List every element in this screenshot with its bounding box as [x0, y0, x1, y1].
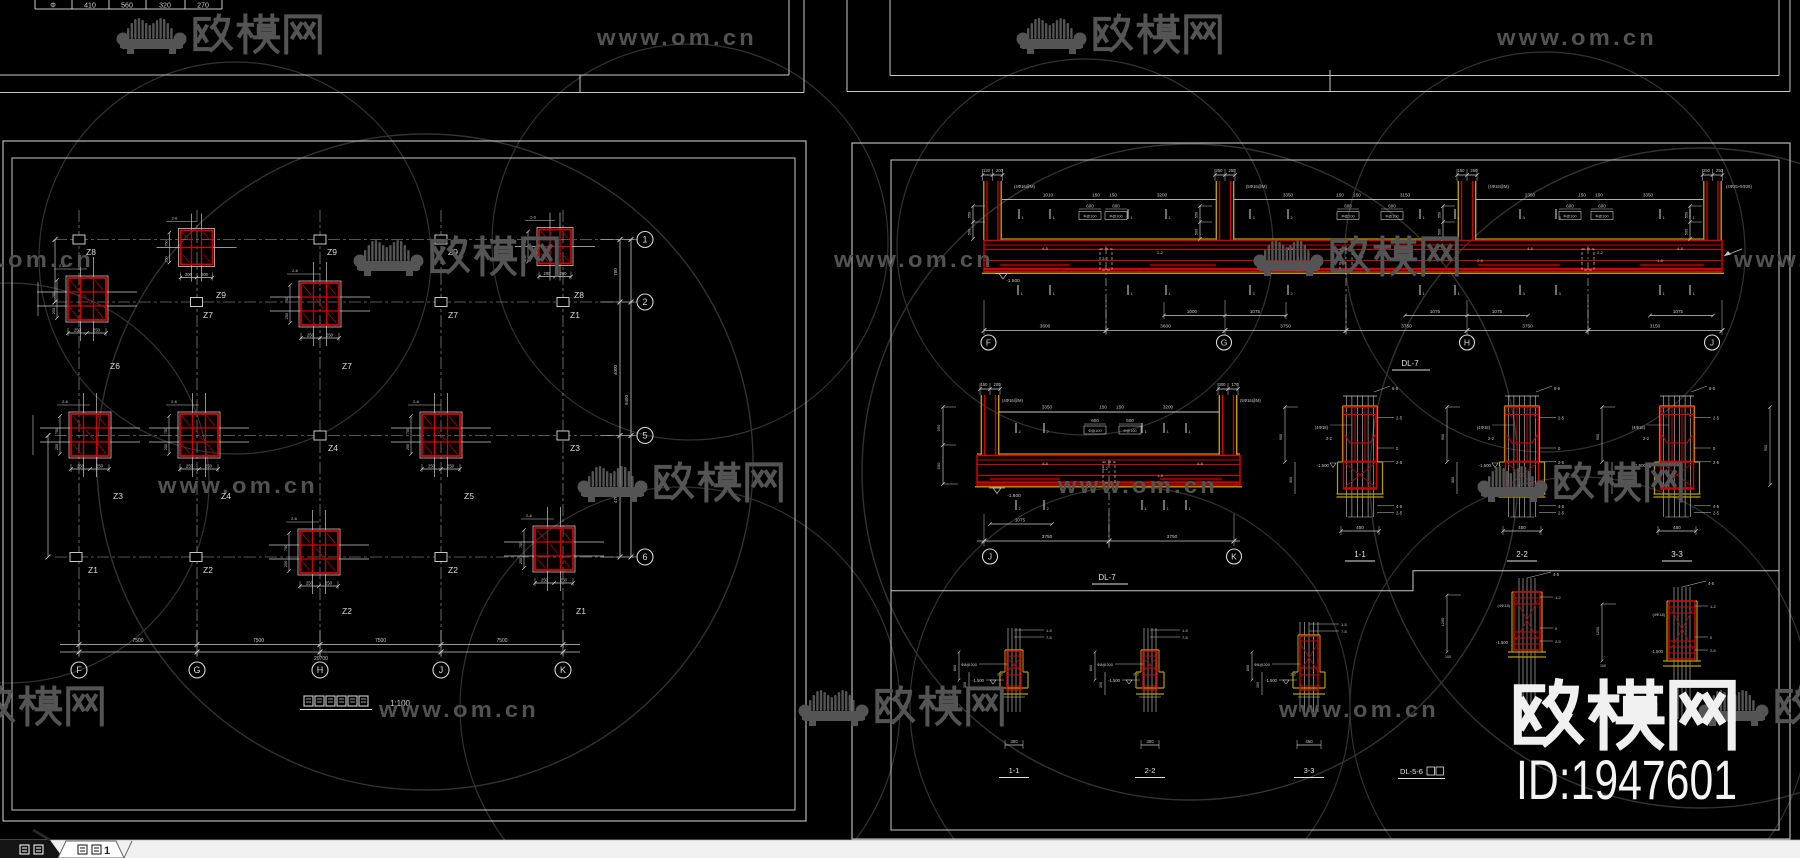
svg-text:www.om.cn: www.om.cn: [833, 247, 994, 272]
svg-text:DL-7: DL-7: [1401, 359, 1419, 368]
svg-text:Z2: Z2: [448, 565, 458, 575]
svg-text:1200: 1200: [1596, 627, 1600, 635]
svg-text:560: 560: [121, 3, 133, 10]
svg-text:6-5: 6-5: [1709, 386, 1716, 391]
svg-text:J: J: [439, 665, 444, 675]
svg-text:H: H: [1464, 338, 1470, 348]
svg-text:Φ@100: Φ@100: [1083, 215, 1096, 219]
svg-text:500: 500: [968, 229, 972, 235]
svg-text:1-5: 1-5: [1341, 622, 1348, 627]
svg-text:(4Φ18): (4Φ18): [1497, 603, 1510, 608]
svg-text:3350: 3350: [1042, 405, 1053, 410]
svg-text:7-5: 7-5: [1341, 629, 1348, 634]
svg-text:550: 550: [936, 424, 941, 431]
svg-text:Φ@100: Φ@100: [1109, 215, 1122, 219]
svg-text:300: 300: [1219, 382, 1227, 387]
svg-text:600: 600: [1598, 204, 1606, 209]
svg-text:2-5: 2-5: [1558, 511, 1565, 516]
svg-text:G: G: [193, 665, 200, 675]
svg-text:3200: 3200: [1163, 405, 1174, 410]
svg-text:H: H: [317, 665, 324, 675]
svg-text:www.om.cn: www.om.cn: [596, 25, 757, 50]
svg-text:800: 800: [1246, 665, 1250, 671]
svg-text:3350: 3350: [1283, 193, 1294, 198]
svg-text:Z2: Z2: [203, 565, 213, 575]
svg-text:2-2: 2-2: [1516, 550, 1528, 559]
svg-text:150: 150: [1092, 193, 1100, 198]
svg-text:Φ@100: Φ@100: [1595, 215, 1608, 219]
svg-text:3600: 3600: [1040, 324, 1051, 330]
svg-text:(4Φ18): (4Φ18): [1315, 425, 1329, 430]
svg-text:Z3: Z3: [570, 443, 580, 453]
svg-text:1075: 1075: [1492, 309, 1503, 314]
svg-text:Z7: Z7: [203, 310, 213, 320]
svg-text:2: 2: [642, 297, 647, 307]
svg-text:29700: 29700: [314, 656, 328, 662]
svg-text:270: 270: [197, 3, 209, 10]
svg-text:3-3: 3-3: [1304, 766, 1315, 775]
svg-text:250: 250: [93, 328, 101, 333]
svg-text:G: G: [1221, 338, 1228, 348]
svg-text:150: 150: [1116, 405, 1124, 410]
svg-text:Z3: Z3: [113, 491, 123, 501]
svg-text:250: 250: [77, 464, 85, 469]
svg-text:www.om.cn: www.om.cn: [1057, 473, 1218, 498]
svg-text:1: 1: [642, 235, 647, 245]
svg-text:3600: 3600: [1160, 324, 1171, 330]
svg-text:4-5: 4-5: [1396, 504, 1403, 509]
svg-text:1000: 1000: [1187, 309, 1198, 314]
svg-text:3750: 3750: [1167, 534, 1178, 540]
svg-text:750: 750: [519, 542, 523, 548]
svg-text:2-6: 2-6: [526, 513, 533, 518]
svg-text:2-2: 2-2: [1326, 436, 1333, 441]
svg-text:2-5: 2-5: [1555, 639, 1562, 644]
svg-text:1010: 1010: [1043, 193, 1054, 198]
svg-text:450: 450: [1305, 739, 1313, 744]
svg-text:2-2: 2-2: [1157, 250, 1164, 255]
svg-text:4-5: 4-5: [1042, 461, 1049, 466]
svg-text:(5Φ16@M): (5Φ16@M): [1240, 398, 1261, 403]
svg-text:410: 410: [84, 3, 96, 10]
svg-text:450: 450: [1673, 525, 1681, 530]
svg-text:ID:1947601: ID:1947601: [1516, 748, 1737, 811]
svg-text:800: 800: [1089, 665, 1093, 671]
svg-text:250: 250: [186, 464, 194, 469]
svg-text:2-5: 2-5: [1713, 460, 1720, 465]
svg-text:250: 250: [1716, 168, 1724, 173]
svg-text:Φ8@200: Φ8@200: [961, 662, 978, 667]
svg-text:750: 750: [164, 428, 168, 434]
svg-text:Z2: Z2: [342, 606, 352, 616]
svg-text:2-5: 2-5: [1477, 258, 1484, 263]
svg-text:300: 300: [1256, 682, 1260, 688]
svg-text:200: 200: [994, 382, 1002, 387]
svg-text:250: 250: [285, 313, 289, 319]
svg-text:(4Φ16@M): (4Φ16@M): [1002, 398, 1023, 403]
svg-text:3750: 3750: [1280, 324, 1291, 330]
svg-text:200: 200: [560, 271, 568, 276]
svg-text:2-2: 2-2: [1145, 766, 1156, 775]
svg-text:600: 600: [1566, 204, 1574, 209]
svg-text:250: 250: [52, 308, 56, 314]
svg-text:300: 300: [1010, 739, 1018, 744]
svg-text:150: 150: [1336, 193, 1344, 198]
svg-text:Z8: Z8: [574, 290, 584, 300]
svg-text:J: J: [988, 552, 992, 562]
svg-text:3-3: 3-3: [1671, 550, 1683, 559]
svg-text:2-2: 2-2: [1290, 672, 1297, 677]
svg-text:250: 250: [165, 256, 169, 262]
svg-text:www.om.cn: www.om.cn: [1278, 697, 1439, 722]
svg-text:www.om.cn: www.om.cn: [1733, 247, 1800, 272]
svg-text:Φ8@200: Φ8@200: [1254, 662, 1271, 667]
svg-text:200: 200: [996, 168, 1004, 173]
svg-text:250: 250: [428, 464, 436, 469]
svg-text:200: 200: [544, 271, 552, 276]
svg-text:2-6: 2-6: [413, 399, 420, 404]
svg-text:750: 750: [284, 545, 288, 551]
svg-text:900: 900: [1764, 445, 1768, 451]
svg-text:250: 250: [447, 464, 455, 469]
svg-text:3150: 3150: [1400, 193, 1411, 198]
svg-text:6: 6: [642, 552, 647, 562]
svg-text:Z9: Z9: [327, 247, 337, 257]
svg-text:4-5: 4-5: [1558, 504, 1565, 509]
svg-text:2-6: 2-6: [291, 516, 298, 521]
svg-text:120: 120: [983, 168, 991, 173]
svg-text:-1.500: -1.500: [972, 678, 985, 683]
svg-text:170: 170: [1232, 382, 1240, 387]
svg-text:200: 200: [201, 272, 209, 277]
svg-text:Z1: Z1: [570, 310, 580, 320]
svg-text:150: 150: [1099, 405, 1107, 410]
svg-text:150: 150: [1595, 193, 1603, 198]
svg-text:250: 250: [325, 581, 333, 586]
svg-text:900: 900: [1279, 434, 1283, 440]
svg-text:7500: 7500: [496, 638, 507, 644]
svg-text:250: 250: [164, 444, 168, 450]
svg-text:Φ@100: Φ@100: [1341, 215, 1354, 219]
svg-text:250: 250: [541, 578, 549, 583]
svg-text:320: 320: [159, 3, 171, 10]
svg-text:Z5: Z5: [464, 491, 474, 501]
svg-text:Z1: Z1: [576, 606, 586, 616]
svg-text:3150: 3150: [1650, 324, 1661, 330]
svg-text:4-5: 4-5: [1553, 572, 1560, 577]
svg-text:7500: 7500: [253, 638, 264, 644]
svg-text:Z7: Z7: [448, 310, 458, 320]
svg-text:J: J: [1710, 338, 1714, 348]
svg-text:150: 150: [1578, 193, 1586, 198]
svg-text:6-5: 6-5: [1554, 386, 1561, 391]
svg-text:2-5: 2-5: [1713, 511, 1720, 516]
svg-text:2-5: 2-5: [1713, 416, 1720, 421]
svg-text:-1.500: -1.500: [1651, 649, 1664, 654]
svg-text:250: 250: [1471, 168, 1479, 173]
svg-text:4-5: 4-5: [1677, 246, 1684, 251]
svg-text:750: 750: [285, 297, 289, 303]
svg-text:Z1: Z1: [88, 565, 98, 575]
svg-text:250: 250: [519, 558, 523, 564]
svg-text:1200: 1200: [1441, 618, 1445, 626]
svg-text:-1.500: -1.500: [1006, 278, 1020, 284]
svg-text:100: 100: [1600, 664, 1606, 668]
svg-text:5: 5: [642, 431, 647, 441]
svg-text:3200: 3200: [1157, 193, 1168, 198]
svg-text:2-6: 2-6: [62, 399, 69, 404]
svg-text:4-5: 4-5: [1042, 246, 1049, 251]
svg-text:4-5: 4-5: [1708, 581, 1715, 586]
svg-text:4-5: 4-5: [1197, 461, 1204, 466]
svg-text:1: 1: [104, 845, 110, 857]
svg-text:250: 250: [307, 333, 315, 338]
svg-text:4000: 4000: [613, 364, 618, 375]
svg-text:(4Φ25+5Φ25): (4Φ25+5Φ25): [1726, 184, 1752, 189]
svg-text:2-5: 2-5: [1710, 648, 1717, 653]
svg-text:250: 250: [96, 464, 104, 469]
svg-text:4-5: 4-5: [1713, 504, 1720, 509]
svg-text:(4Φ18): (4Φ18): [1477, 425, 1491, 430]
svg-text:600: 600: [1086, 204, 1094, 209]
svg-text:Z9: Z9: [216, 290, 226, 300]
svg-text:250: 250: [74, 328, 82, 333]
svg-text:-1.500: -1.500: [1108, 678, 1121, 683]
svg-text:2350: 2350: [1525, 193, 1536, 198]
svg-text:(4Φ18): (4Φ18): [1632, 425, 1646, 430]
svg-text:www.om.cn: www.om.cn: [0, 247, 94, 272]
svg-text:1-1: 1-1: [1009, 766, 1020, 775]
svg-text:1-1: 1-1: [1354, 550, 1366, 559]
svg-text:7500: 7500: [132, 638, 143, 644]
svg-text:450: 450: [1518, 525, 1526, 530]
svg-text:550: 550: [1195, 212, 1199, 218]
svg-text:7-5: 7-5: [1182, 635, 1189, 640]
svg-text:750: 750: [55, 428, 59, 434]
svg-text:Φ@100: Φ@100: [1123, 429, 1136, 433]
svg-text:150: 150: [981, 382, 989, 387]
svg-text:1-2: 1-2: [1710, 604, 1717, 609]
svg-text:150: 150: [1353, 193, 1361, 198]
svg-text:3750: 3750: [1042, 534, 1053, 540]
svg-text:Z4: Z4: [328, 443, 338, 453]
svg-text:100: 100: [1445, 655, 1451, 659]
svg-text:Φ8@200: Φ8@200: [1097, 662, 1114, 667]
svg-text:K: K: [1231, 552, 1237, 562]
svg-text:9450: 9450: [624, 394, 629, 405]
svg-text:(5Φ16@M): (5Φ16@M): [1246, 184, 1267, 189]
svg-text:(4Φ18): (4Φ18): [1652, 612, 1665, 617]
svg-text:1075: 1075: [1673, 309, 1684, 314]
svg-text:2-2: 2-2: [997, 672, 1004, 677]
svg-text:Φ@100: Φ@100: [1385, 215, 1398, 219]
svg-text:750: 750: [52, 292, 56, 298]
svg-text:DL-7: DL-7: [1098, 573, 1116, 582]
svg-text:www.om.cn: www.om.cn: [378, 697, 539, 722]
svg-text:2-2: 2-2: [1643, 436, 1650, 441]
svg-text:1-2: 1-2: [1555, 595, 1562, 600]
svg-text:900: 900: [1441, 434, 1445, 440]
svg-text:2-2: 2-2: [1488, 436, 1495, 441]
svg-text:250: 250: [1229, 168, 1237, 173]
svg-text:-1.500: -1.500: [1479, 463, 1492, 468]
svg-text:550: 550: [1438, 212, 1442, 218]
svg-text:500: 500: [936, 462, 941, 469]
svg-text:1075: 1075: [1015, 518, 1026, 523]
svg-text:250: 250: [406, 444, 410, 450]
svg-text:250: 250: [560, 578, 568, 583]
svg-text:150: 150: [1458, 168, 1466, 173]
svg-text:250: 250: [55, 444, 59, 450]
svg-text:Φ@100: Φ@100: [1088, 429, 1101, 433]
svg-text:600: 600: [1126, 418, 1134, 423]
svg-text:2-6: 2-6: [171, 399, 178, 404]
svg-text:1-5: 1-5: [1657, 258, 1664, 263]
svg-text:600: 600: [1112, 204, 1120, 209]
svg-text:Φ@100: Φ@100: [1563, 215, 1576, 219]
svg-text:-1.600: -1.600: [1007, 493, 1021, 499]
svg-text:(4Φ16@M): (4Φ16@M): [1014, 184, 1035, 189]
svg-text:750: 750: [406, 428, 410, 434]
svg-text:900: 900: [1596, 434, 1600, 440]
svg-text:500: 500: [1438, 229, 1442, 235]
svg-text:7-5: 7-5: [1046, 635, 1053, 640]
svg-text:2-6: 2-6: [172, 216, 179, 221]
svg-text:450: 450: [1356, 525, 1364, 530]
svg-text:-1.500: -1.500: [1265, 678, 1278, 683]
svg-text:600: 600: [1091, 418, 1099, 423]
svg-text:Z7: Z7: [342, 361, 352, 371]
svg-text:F: F: [76, 665, 82, 675]
svg-text:3350: 3350: [1643, 193, 1654, 198]
svg-text:2-5: 2-5: [1558, 460, 1565, 465]
svg-text:250: 250: [306, 581, 314, 586]
svg-text:2-6: 2-6: [292, 268, 299, 273]
svg-text:300: 300: [1099, 682, 1103, 688]
svg-text:2-2: 2-2: [1102, 256, 1109, 261]
svg-text:200: 200: [185, 272, 193, 277]
svg-text:1-5: 1-5: [1046, 628, 1053, 633]
svg-text:300: 300: [1451, 477, 1455, 483]
svg-text:2-6: 2-6: [530, 215, 537, 220]
svg-text:550: 550: [1685, 212, 1689, 218]
svg-text:250: 250: [1703, 168, 1711, 173]
svg-text:2-2: 2-2: [1597, 250, 1604, 255]
svg-text:750: 750: [613, 268, 618, 276]
svg-text:600: 600: [1344, 204, 1352, 209]
svg-text:Z6: Z6: [110, 361, 120, 371]
svg-text:500: 500: [1195, 229, 1199, 235]
svg-text:K: K: [560, 665, 566, 675]
svg-text:(4Φ16@M): (4Φ16@M): [1488, 184, 1509, 189]
svg-text:250: 250: [284, 561, 288, 567]
svg-text:6-5: 6-5: [1392, 386, 1399, 391]
svg-text:www.om.cn: www.om.cn: [157, 473, 318, 498]
svg-text:7500: 7500: [375, 638, 386, 644]
svg-text:250: 250: [326, 333, 334, 338]
svg-text:2-5: 2-5: [1396, 460, 1403, 465]
svg-text:3750: 3750: [1522, 324, 1533, 330]
svg-text:DL-5-6: DL-5-6: [1400, 767, 1423, 776]
svg-text:-1.500: -1.500: [1496, 640, 1509, 645]
svg-text:300: 300: [1289, 477, 1293, 483]
svg-text:2-2: 2-2: [1133, 672, 1140, 677]
svg-text:250: 250: [1216, 168, 1224, 173]
svg-text:1075: 1075: [1250, 309, 1261, 314]
svg-text:F: F: [986, 338, 991, 348]
svg-text:500: 500: [1685, 229, 1689, 235]
svg-text:4-5: 4-5: [1527, 246, 1534, 251]
svg-text:800: 800: [953, 665, 957, 671]
svg-text:-1.500: -1.500: [1317, 463, 1330, 468]
svg-text:Φ: Φ: [50, 3, 56, 10]
svg-text:600: 600: [1388, 204, 1396, 209]
svg-text:150: 150: [1109, 193, 1117, 198]
svg-text:1-5: 1-5: [1182, 628, 1189, 633]
svg-text:2-5: 2-5: [1396, 511, 1403, 516]
svg-text:250: 250: [205, 464, 213, 469]
svg-text:550: 550: [968, 212, 972, 218]
svg-text:3750: 3750: [1401, 324, 1412, 330]
svg-text:www.om.cn: www.om.cn: [1496, 25, 1657, 50]
svg-text:750: 750: [165, 240, 169, 246]
svg-text:2-5: 2-5: [1396, 416, 1403, 421]
svg-text:300: 300: [1146, 739, 1154, 744]
svg-text:1075: 1075: [1430, 309, 1441, 314]
svg-text:2-5: 2-5: [1558, 416, 1565, 421]
